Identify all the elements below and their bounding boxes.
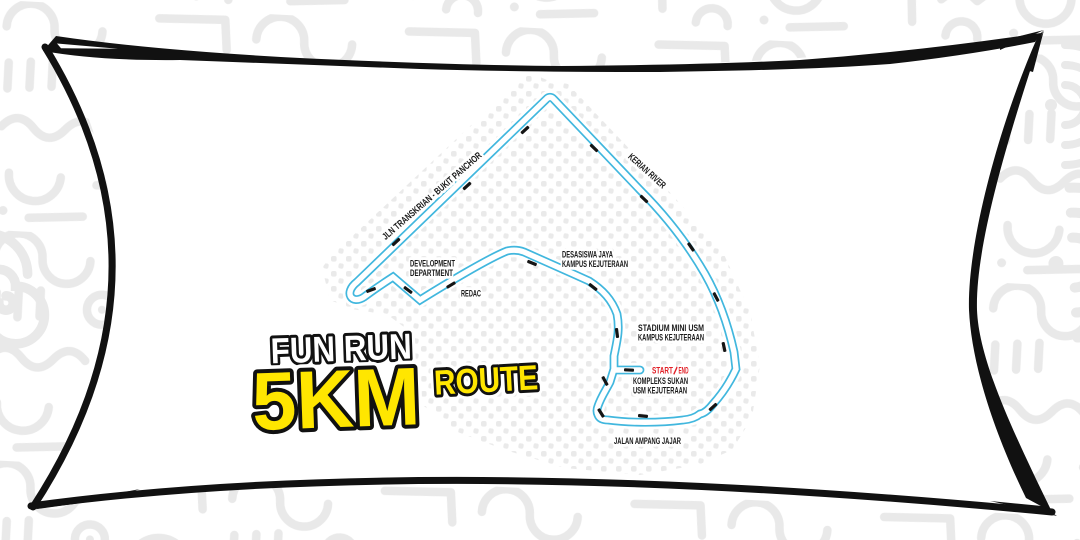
svg-text:KAMPUS KEJUTERAAN: KAMPUS KEJUTERAAN	[562, 259, 628, 270]
svg-text:KAMPUS KEJUTERAAN: KAMPUS KEJUTERAAN	[638, 333, 704, 344]
svg-text:END: END	[679, 366, 689, 377]
svg-text:REDAC: REDAC	[461, 289, 481, 300]
svg-text:5KM: 5KM	[250, 351, 421, 448]
svg-text:START: START	[652, 366, 673, 377]
svg-text:JALAN AMPANG JAJAR: JALAN AMPANG JAJAR	[614, 436, 681, 447]
svg-text:DEPARTMENT: DEPARTMENT	[410, 268, 453, 279]
svg-text:ROUTE: ROUTE	[433, 358, 539, 402]
svg-text:USM KEJUTERAAN: USM KEJUTERAAN	[633, 386, 687, 397]
